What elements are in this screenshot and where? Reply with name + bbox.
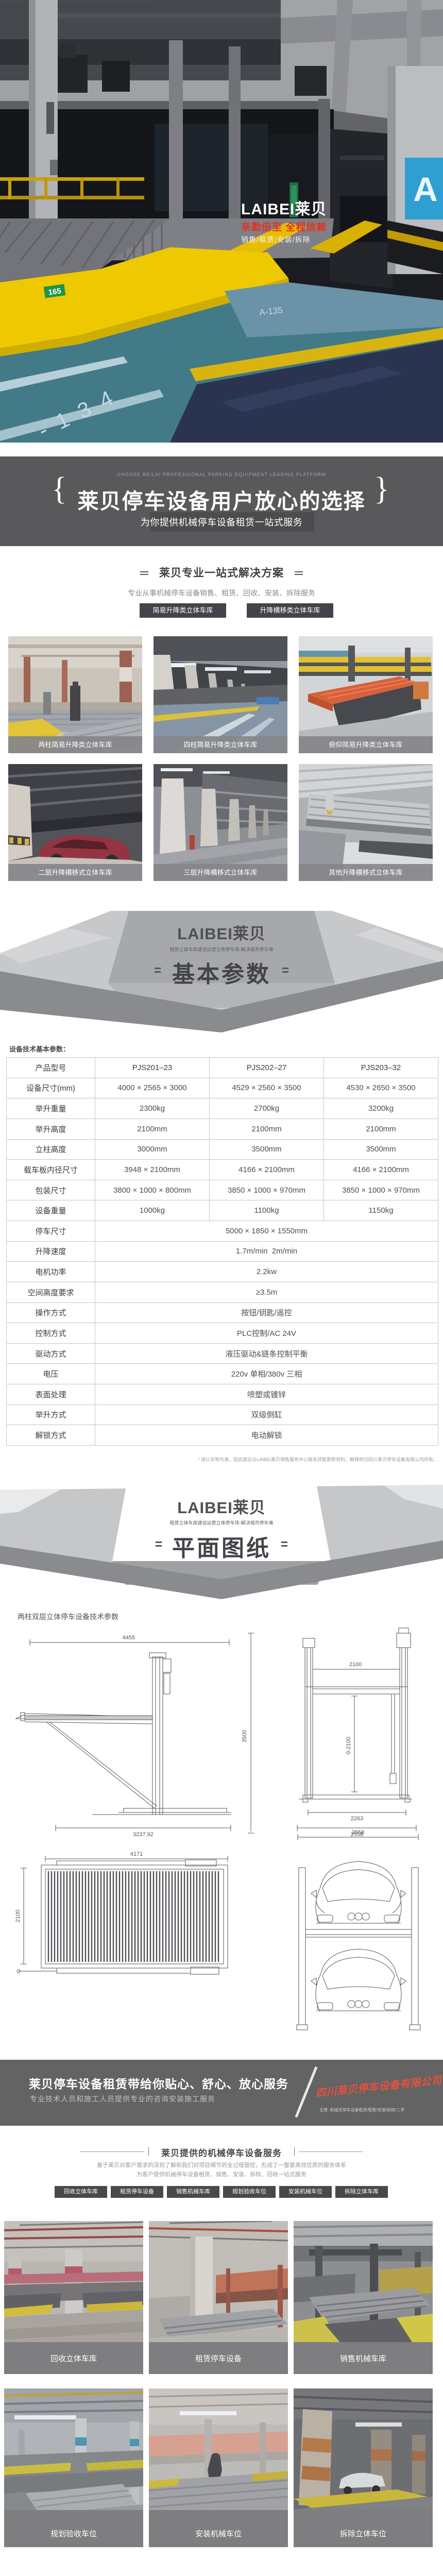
svg-text:租赁立体车库建设运营立体停车场·解决城市停车难: 租赁立体车库建设运营立体停车场·解决城市停车难 [170,1520,274,1526]
svg-text:两柱简易升降类立体车库: 两柱简易升降类立体车库 [38,741,112,749]
svg-text:LAIBEI莱贝: LAIBEI莱贝 [177,925,266,943]
svg-text:回收立体车库: 回收立体车库 [50,2354,97,2363]
svg-text:销售机械车库: 销售机械车库 [340,2354,386,2363]
svg-text:LAIBEI莱贝: LAIBEI莱贝 [177,1499,266,1517]
svg-text:4171: 4171 [130,1851,143,1857]
svg-text:安装机械车位: 安装机械车位 [195,2530,242,2538]
svg-text:销售/租赁/安装/拆除: 销售/租赁/安装/拆除 [241,235,311,244]
svg-text:2100: 2100 [349,1662,362,1668]
svg-text:亲勤倍至 全程信赖: 亲勤倍至 全程信赖 [241,221,327,233]
svg-text:拆除立体车位: 拆除立体车位 [340,2530,386,2538]
svg-text:其他升降横移式立体车库: 其他升降横移式立体车库 [329,869,402,876]
svg-text:租赁停车设备: 租赁停车设备 [195,2354,242,2363]
svg-text:租赁立体车库建设运营立体停车场·解决城市停车难: 租赁立体车库建设运营立体停车场·解决城市停车难 [170,946,274,952]
svg-text:2558: 2558 [352,1829,364,1836]
svg-text:2263: 2263 [351,1816,363,1822]
svg-text:俯仰简易升降类立体车库: 俯仰简易升降类立体车库 [329,741,402,749]
svg-text:3500: 3500 [242,1730,248,1742]
svg-text:平面图纸: 平面图纸 [172,1536,271,1561]
svg-text:4455: 4455 [123,1635,135,1641]
svg-text:四柱简易升降类立体车库: 四柱简易升降类立体车库 [183,741,257,749]
svg-text:LAIBEI莱贝: LAIBEI莱贝 [241,201,327,218]
svg-text:基本参数: 基本参数 [172,962,271,987]
svg-text:三层升降横移式立体车库: 三层升降横移式立体车库 [183,869,257,876]
svg-text:165: 165 [48,286,62,297]
svg-text:规划验收车位: 规划验收车位 [50,2530,97,2538]
svg-text:A: A [413,170,438,208]
svg-text:二层升降横移式立体车库: 二层升降横移式立体车库 [38,869,112,876]
svg-text:0-2100: 0-2100 [346,1737,352,1754]
svg-text:3237.92: 3237.92 [133,1832,154,1838]
svg-text:2100: 2100 [15,1910,21,1922]
